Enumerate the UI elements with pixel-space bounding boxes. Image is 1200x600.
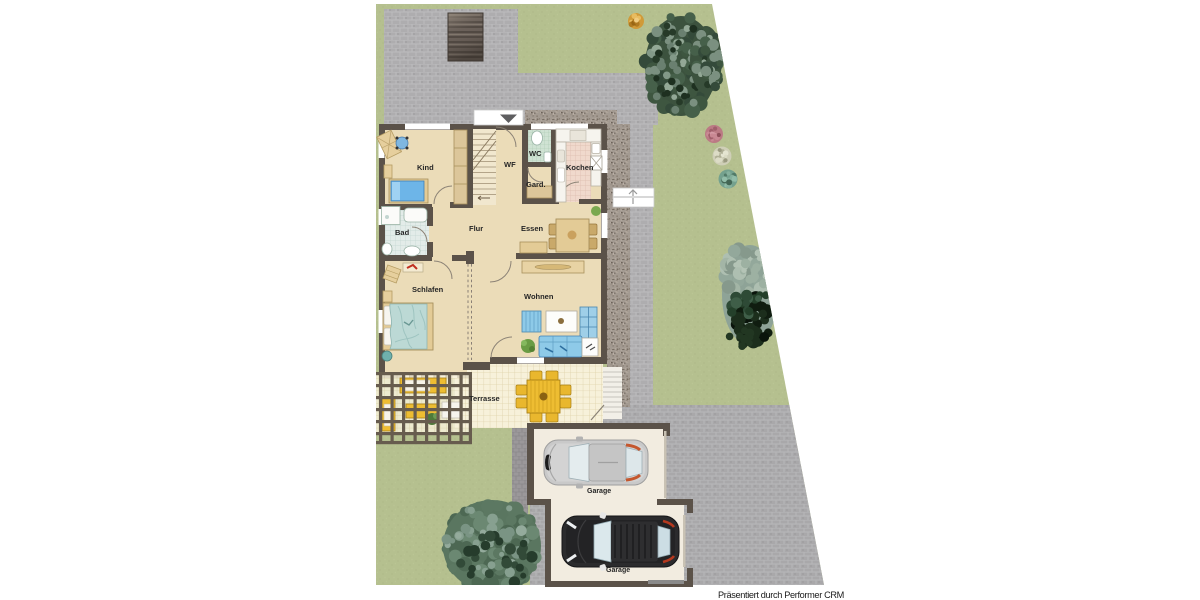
svg-text:Kind: Kind (417, 163, 434, 172)
svg-text:WC: WC (529, 149, 542, 158)
svg-text:Wohnen: Wohnen (524, 292, 554, 301)
svg-text:Essen: Essen (521, 224, 544, 233)
svg-text:WF: WF (504, 160, 516, 169)
svg-text:Bad: Bad (395, 228, 410, 237)
svg-text:Flur: Flur (469, 224, 483, 233)
svg-text:Präsentiert durch Performer CR: Präsentiert durch Performer CRM (718, 590, 844, 600)
svg-text:Schlafen: Schlafen (412, 285, 444, 294)
svg-text:Terrasse: Terrasse (469, 394, 500, 403)
svg-text:Kochen: Kochen (566, 163, 594, 172)
svg-text:Garage: Garage (606, 567, 630, 574)
svg-text:Gard.: Gard. (526, 180, 546, 189)
svg-text:Garage: Garage (587, 488, 611, 495)
